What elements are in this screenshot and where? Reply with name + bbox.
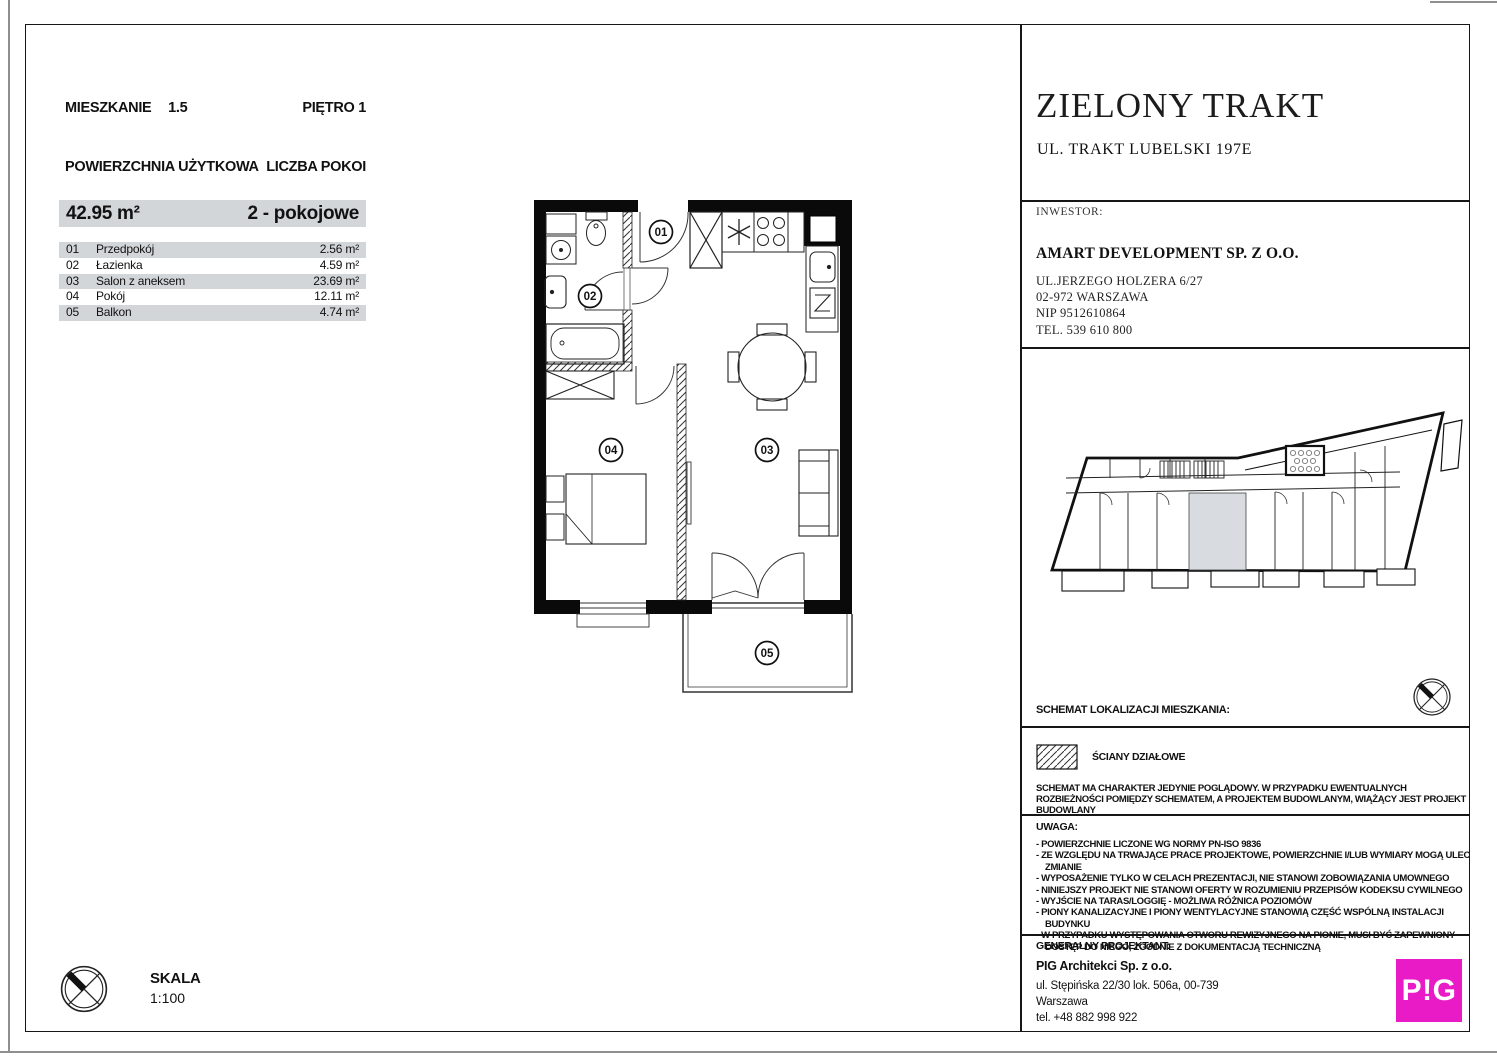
note-item: PIONY KANALIZACYJNE I PIONY WENTYLACYJNE… <box>1036 907 1470 930</box>
bathroom-sink <box>545 276 566 308</box>
room-table: 01 Przedpokój 2.56 m² 02 Łazienka 4.59 m… <box>59 242 366 321</box>
building-schematic <box>1028 392 1468 724</box>
room-name: Przedpokój <box>96 242 320 258</box>
investor-line: UL.JERZEGO HOLZERA 6/27 <box>1036 273 1203 289</box>
page-edge-left <box>8 0 10 1052</box>
room-area: 2.56 m² <box>320 242 359 258</box>
project-title: ZIELONY TRAKT <box>1036 86 1324 126</box>
dining-table <box>728 324 816 410</box>
washing-machine <box>546 236 576 264</box>
investor-label: INWESTOR: <box>1036 206 1103 218</box>
room-area: 4.74 m² <box>320 305 359 321</box>
note-item: NINIEJSZY PROJEKT NIE STANOWI OFERTY W R… <box>1036 885 1470 896</box>
room-label-02: 02 <box>584 291 597 303</box>
notes-list: POWIERZCHNIE LICZONE WG NORMY PN-ISO 983… <box>1036 839 1470 953</box>
stove-burners <box>754 212 788 252</box>
shelf <box>546 214 576 234</box>
north-arrow-icon <box>50 955 118 1023</box>
designer-label: GENERALNY PROJEKTANT: <box>1036 940 1170 952</box>
room-label-03: 03 <box>761 445 774 457</box>
doorway-jambs <box>624 268 630 310</box>
table-row: 01 Przedpokój 2.56 m² <box>59 242 366 258</box>
note-item: WYJŚCIE NA TARAS/LOGGIĘ - MOŻLIWA RÓŻNIC… <box>1036 896 1470 907</box>
rooms-column-label: LICZBA POKOI <box>266 159 366 175</box>
unit-header-row: MIESZKANIE 1.5 PIĘTRO 1 <box>65 100 366 116</box>
table-row: 05 Balkon 4.74 m² <box>59 305 366 321</box>
room-label-04: 04 <box>605 445 618 457</box>
divider-title <box>1020 200 1470 202</box>
sofa <box>799 450 838 536</box>
highlighted-unit <box>1189 493 1246 570</box>
mosaic-area <box>1286 446 1324 475</box>
note-item: ZE WZGLĘDU NA TRWAJĄCE PRACE PROJEKTOWE,… <box>1036 850 1470 873</box>
divider-schematic <box>1020 726 1470 728</box>
divider-investor <box>1020 347 1470 349</box>
apartment-number: 1.5 <box>168 100 187 116</box>
pig-logo-text: P!G <box>1402 974 1457 1008</box>
note-item: WYPOSAŻENIE TYLKO W CELACH PREZENTACJI, … <box>1036 873 1470 884</box>
room-area: 12.11 m² <box>314 289 359 305</box>
schematic-disclaimer: SCHEMAT MA CHARAKTER JEDYNIE POGLĄDOWY. … <box>1036 784 1468 816</box>
partition-wall-legend-swatch <box>1036 744 1078 770</box>
scale-value: 1:100 <box>150 990 185 1006</box>
room-name: Balkon <box>96 305 320 321</box>
tv-panel <box>687 462 691 524</box>
toilet <box>586 212 607 246</box>
room-no: 04 <box>66 289 96 305</box>
room-name: Pokój <box>96 289 314 305</box>
page-edge-bottom <box>0 1051 1497 1053</box>
bathtub <box>546 324 624 364</box>
page-edge-top-right <box>1430 1 1497 3</box>
schematic-balconies <box>1062 569 1415 591</box>
note-item: POWIERZCHNIE LICZONE WG NORMY PN-ISO 983… <box>1036 839 1470 850</box>
scale-label: SKALA <box>150 970 201 987</box>
room-area: 23.69 m² <box>313 274 359 290</box>
room-name: Salon z aneksem <box>96 274 313 290</box>
room-name: Łazienka <box>96 258 320 274</box>
door-swings <box>585 212 688 404</box>
legend-label: ŚCIANY DZIAŁOWE <box>1092 751 1185 763</box>
unit-area-row: 42.95 m² 2 - pokojowe <box>59 200 366 227</box>
panel-divider <box>1020 24 1022 1032</box>
unit-subheader-row: POWIERZCHNIA UŻYTKOWA LICZBA POKOI <box>65 159 366 175</box>
table-row: 03 Salon z aneksem 23.69 m² <box>59 274 366 290</box>
corridor <box>1066 472 1400 493</box>
designer-name: PIG Architekci Sp. z o.o. <box>1036 959 1172 973</box>
kitchen-sink <box>810 252 835 282</box>
french-door <box>712 553 804 608</box>
floor-label: PIĘTRO 1 <box>302 100 366 116</box>
nightstands <box>546 476 564 540</box>
table-row: 04 Pokój 12.11 m² <box>59 289 366 305</box>
fridge <box>690 212 722 268</box>
investor-line: TEL. 539 610 800 <box>1036 322 1203 338</box>
room-label-01: 01 <box>655 227 668 239</box>
pig-logo: P!G <box>1396 959 1462 1022</box>
project-address: UL. TRAKT LUBELSKI 197E <box>1037 141 1252 159</box>
unit-label-group: MIESZKANIE 1.5 <box>65 100 187 116</box>
room-no: 02 <box>66 258 96 274</box>
partition-walls <box>546 212 686 600</box>
table-row: 02 Łazienka 4.59 m² <box>59 258 366 274</box>
room-no: 03 <box>66 274 96 290</box>
designer-line: ul. Stępińska 22/30 lok. 506a, 00-739 <box>1036 978 1219 994</box>
investor-details: UL.JERZEGO HOLZERA 6/27 02-972 WARSZAWA … <box>1036 273 1203 338</box>
investor-line: 02-972 WARSZAWA <box>1036 289 1203 305</box>
hob-icon <box>728 219 750 245</box>
apartment-label: MIESZKANIE <box>65 100 151 116</box>
unit-area-value: 42.95 m² <box>66 203 140 225</box>
investor-name: AMART DEVELOPMENT SP. Z O.O. <box>1036 245 1299 263</box>
north-arrow-icon <box>1414 679 1450 715</box>
notes-label: UWAGA: <box>1036 821 1078 833</box>
floor-plan: 01 02 03 04 05 <box>520 190 870 702</box>
designer-line: tel. +48 882 998 922 <box>1036 1010 1219 1026</box>
designer-details: ul. Stępińska 22/30 lok. 506a, 00-739 Wa… <box>1036 978 1219 1026</box>
wardrobe <box>546 371 614 399</box>
area-column-label: POWIERZCHNIA UŻYTKOWA <box>65 159 259 175</box>
bed <box>566 474 646 544</box>
schematic-label: SCHEMAT LOKALIZACJI MIESZKANIA: <box>1036 704 1230 716</box>
shaft <box>810 216 836 242</box>
room-no: 05 <box>66 305 96 321</box>
room-area: 4.59 m² <box>320 258 359 274</box>
designer-line: Warszawa <box>1036 994 1219 1010</box>
room-label-05: 05 <box>761 648 774 660</box>
unit-rooms-value: 2 - pokojowe <box>248 203 359 225</box>
dishwasher <box>810 288 835 318</box>
room-no: 01 <box>66 242 96 258</box>
investor-line: NIP 9512610864 <box>1036 305 1203 321</box>
window <box>577 603 649 627</box>
